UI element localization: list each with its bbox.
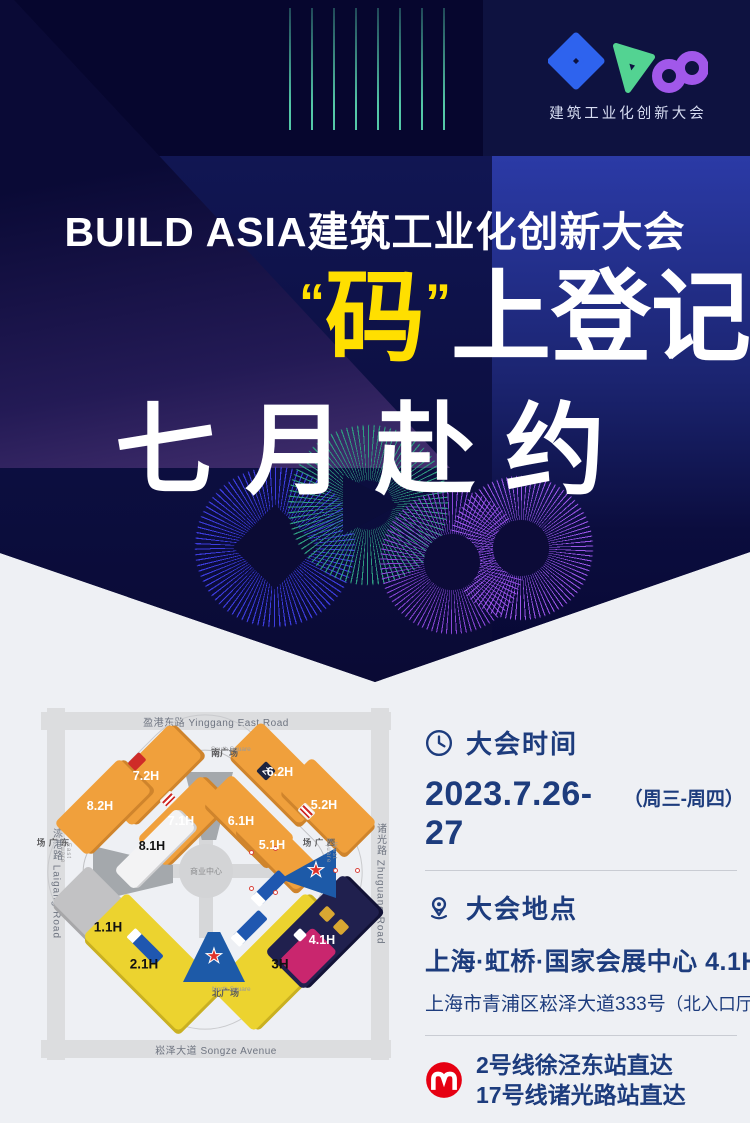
gate-marker-icon [333,868,338,873]
venue-address: 上海市青浦区崧泽大道333号（北入口厅） [425,989,737,1016]
gate-marker-icon [355,868,360,873]
road-bottom-label: 崧泽大道 Songze Avenue [155,1042,277,1057]
divider [425,1035,737,1036]
clock-icon [425,729,453,757]
hall-label-6-2: 6.2H [267,765,293,779]
hero-section: 建筑工业化创新大会 BUILD ASIA建筑工业化创新大会 “码”上登记 七月赴… [0,0,750,690]
gate-marker-icon [273,890,278,895]
quote-open: “ [299,274,325,332]
headline-rest: 上登记 [451,256,750,381]
logo-infinity-icon [657,56,704,88]
teal-lines-decoration [289,8,447,130]
hall-label-6-1: 6.1H [228,814,254,828]
north-square-en: North Square [212,986,251,993]
logo-diamond-icon [551,36,601,86]
shanghai-metro-icon [425,1061,463,1099]
venue-map: 盈港东路 Yinggang East Road 崧泽大道 Songze Aven… [33,700,398,1092]
quote-close: ” [425,274,451,332]
south-square-en: South Square [211,746,251,753]
metro-row: 2号线徐泾东站直达 17号线诸光路站直达 [425,1050,737,1110]
west-star-icon: ★ [307,858,325,883]
hall-label-1-1: 1.1H [94,920,123,935]
address-text: 上海市青浦区崧泽大道333号 [425,994,666,1015]
east-square-en: East Square [59,838,71,863]
place-heading: 大会地点 [466,889,578,926]
hall-label-5-2: 5.2H [311,798,337,812]
hall-label-8-2: 8.2H [87,799,113,813]
gate-marker-icon [249,850,254,855]
north-star-icon: ★ [205,944,223,969]
hall-label-8-1: 8.1H [139,839,165,853]
address-note: （北入口厅） [666,994,750,1014]
event-logo: 建筑工业化创新大会 [533,30,723,138]
event-title: BUILD ASIA建筑工业化创新大会 [0,198,750,258]
road-right-label: 诸光路 Zhuguang Road [373,823,388,945]
time-heading: 大会时间 [466,724,578,761]
hall-label-3: 3H [271,957,288,972]
road-bottom: 崧泽大道 Songze Avenue [41,1040,391,1058]
hall-label-7-1: 7.1H [168,814,194,828]
date-row: 2023.7.26-27 （周三-周四） [425,775,737,853]
info-panel: 大会时间 2023.7.26-27 （周三-周四） 大会地点 上海·虹桥·国家会… [425,724,737,1110]
logo-title: 建筑工业化创新大会 [533,102,723,123]
gate-marker-icon [249,886,254,891]
logo-triangle-icon [616,46,652,90]
metro-line-2: 2号线徐泾东站直达 [476,1050,686,1080]
corridor-north [199,896,213,938]
hall-label-4-1: 4.1H [309,933,335,947]
infinity-hole-left-decoration [424,534,480,590]
logo-shapes-icon [548,30,708,96]
headline-line2: 七月赴约 [0,394,750,509]
commercial-center-label: 商业中心 [190,866,222,877]
event-weekdays: （周三-周四） [624,784,737,811]
poster-page: 建筑工业化创新大会 BUILD ASIA建筑工业化创新大会 “码”上登记 七月赴… [0,0,750,1123]
place-heading-row: 大会地点 [425,889,737,926]
commercial-center: 商业中心 [179,844,233,898]
metro-line-17: 17号线诸光路站直达 [476,1080,686,1110]
hall-label-2-1: 2.1H [130,957,159,972]
event-date: 2023.7.26-27 [425,775,620,853]
headline-line1: “码”上登记 [0,256,750,381]
hall-label-7-2: 7.2H [133,769,159,783]
location-pin-icon [425,894,453,922]
road-right: 诸光路 Zhuguang Road [371,708,389,1060]
venue-name: 上海·虹桥·国家会展中心 4.1H [425,942,737,978]
metro-lines: 2号线徐泾东站直达 17号线诸光路站直达 [476,1050,686,1110]
time-heading-row: 大会时间 [425,724,737,761]
divider [425,870,737,871]
headline-highlight: 码 [325,262,425,374]
hall-label-5-1: 5.1H [259,838,285,852]
west-square-en: West Square [325,838,337,863]
infinity-hole-right-decoration [493,520,549,576]
